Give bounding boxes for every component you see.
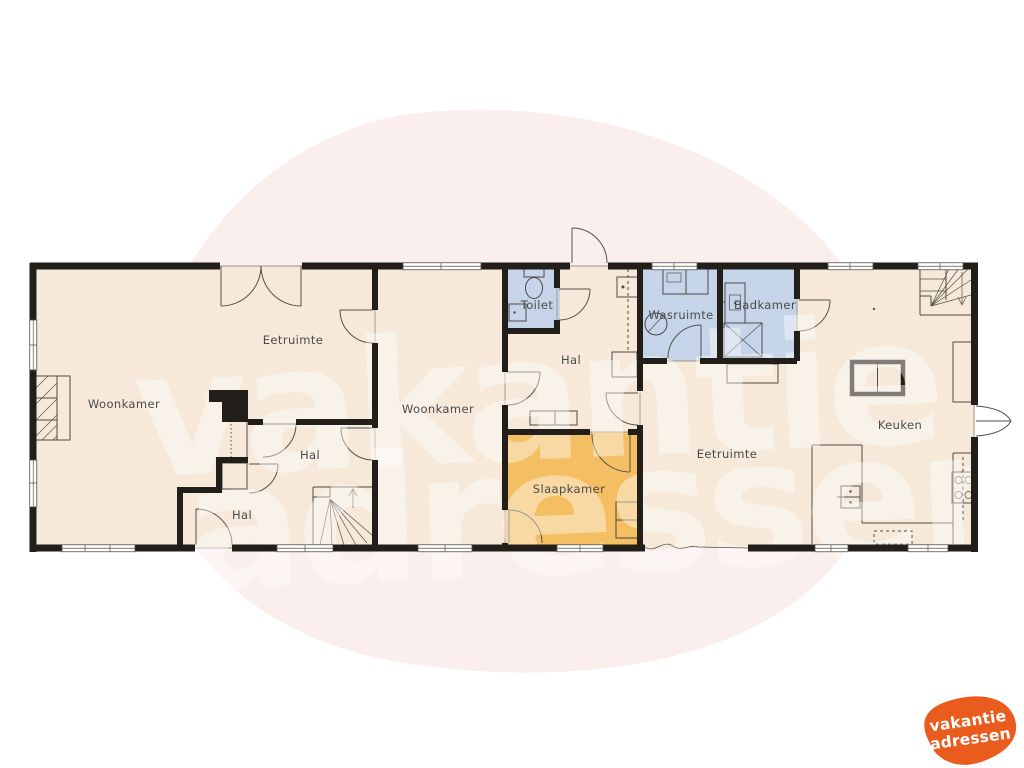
window	[918, 263, 963, 270]
room-label-eetruimte-left: Eetruimte	[263, 333, 323, 347]
room-label-slaapkamer: Slaapkamer	[533, 482, 605, 496]
room-label-woonkamer-left: Woonkamer	[88, 397, 160, 411]
window	[828, 263, 873, 270]
floorplan-canvas: vakantie adressen Woonkamer	[0, 0, 1024, 768]
window	[418, 545, 472, 552]
watermark: vakantie adressen	[130, 277, 1024, 634]
room-label-woonkamer-middle: Woonkamer	[402, 402, 474, 416]
room-label-hal-upper-left: Hal	[300, 448, 320, 462]
room-label-toilet: Toilet	[520, 298, 554, 312]
window	[30, 320, 37, 370]
room-label-badkamer: Badkamer	[734, 298, 796, 312]
window	[30, 460, 37, 507]
window	[62, 545, 135, 552]
window	[652, 263, 697, 270]
room-label-hal-middle: Hal	[561, 353, 581, 367]
room-label-keuken: Keuken	[878, 418, 922, 432]
room-label-hal-lower-left: Hal	[232, 508, 252, 522]
window	[815, 545, 848, 552]
room-label-wasruimte: Wasruimte	[648, 308, 713, 322]
room-label-eetruimte-right: Eetruimte	[697, 447, 757, 461]
window	[557, 545, 603, 552]
window	[403, 263, 481, 270]
window	[908, 545, 948, 552]
window	[277, 545, 333, 552]
